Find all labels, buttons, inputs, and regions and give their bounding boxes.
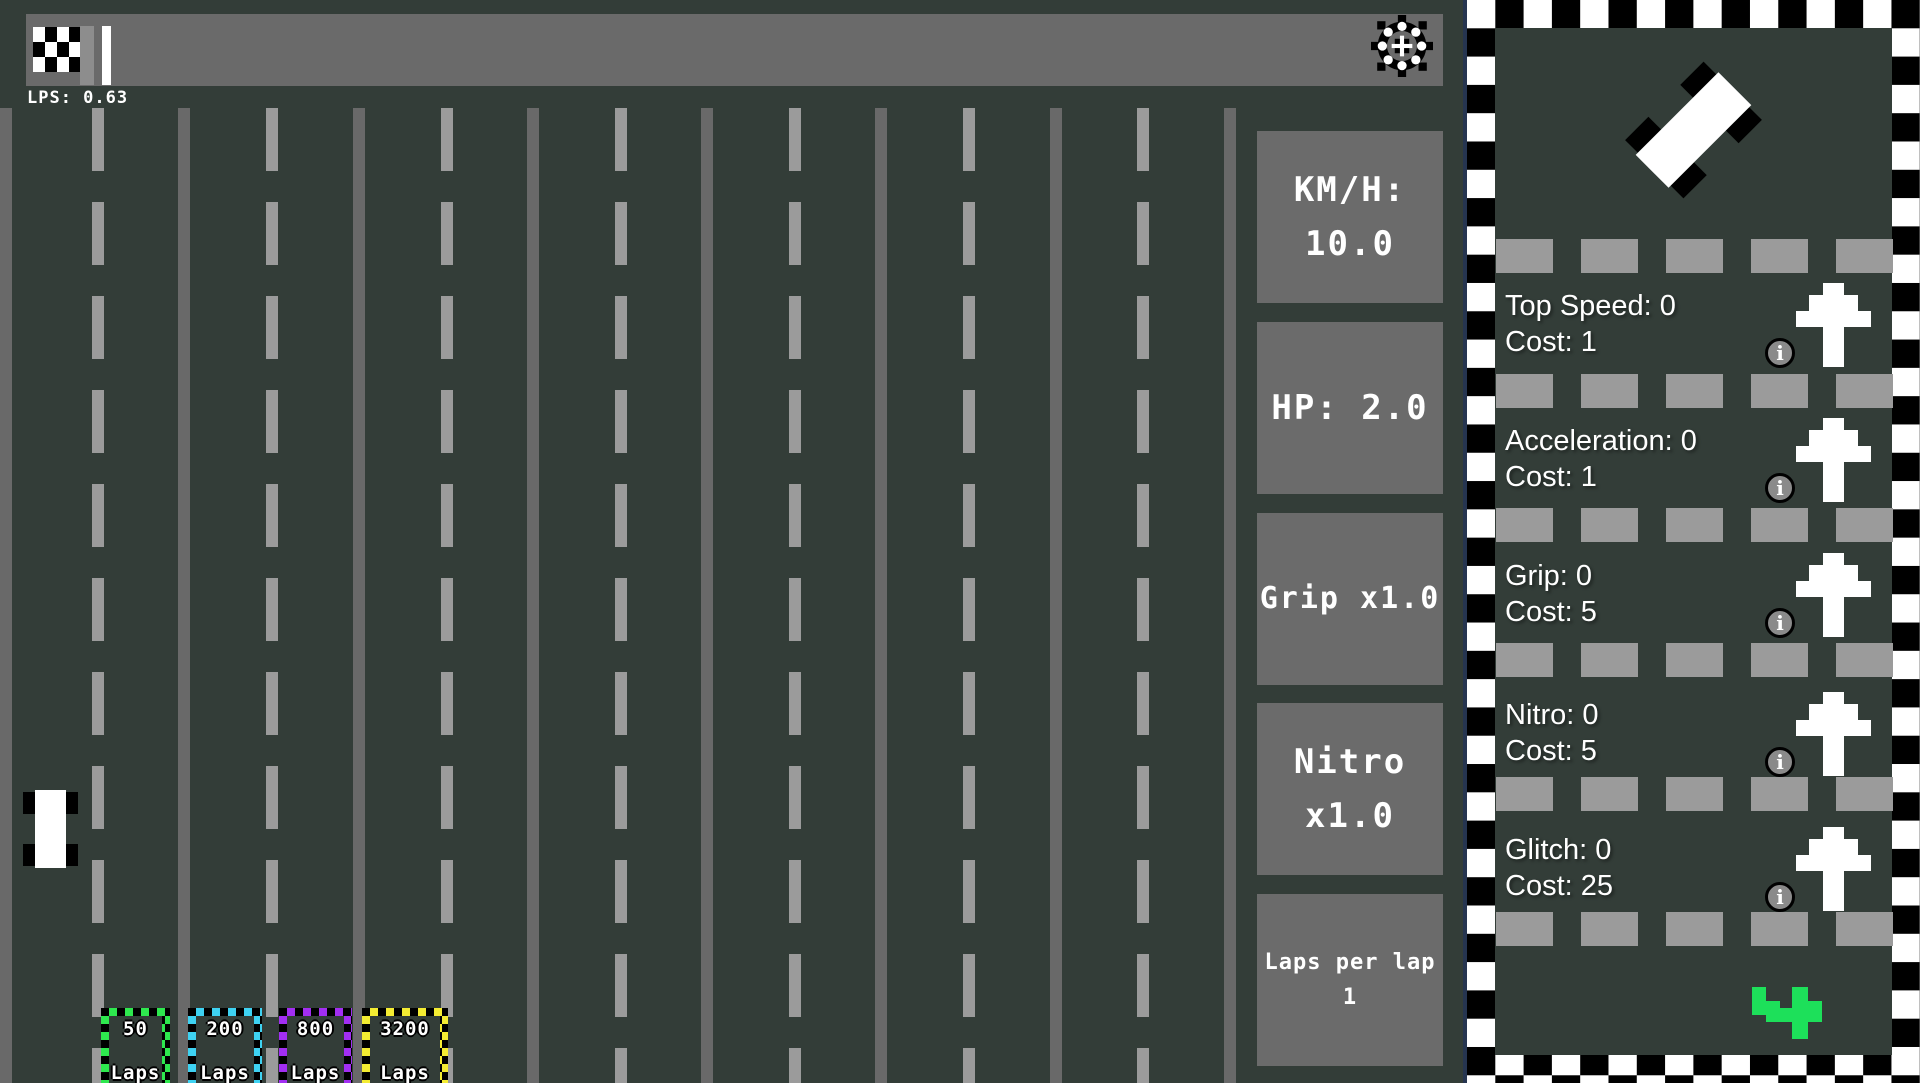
car-wheel <box>66 844 78 866</box>
upgrade-cost-top-speed: Cost: 1 <box>1505 324 1597 360</box>
lane-line-solid <box>875 108 887 1083</box>
upgrade-label-top-speed: Top Speed: 0 <box>1505 288 1676 324</box>
car-wheel <box>66 792 78 814</box>
buy-nitro-button[interactable] <box>1796 692 1871 776</box>
badge-unit: Laps <box>111 1062 161 1083</box>
upgrade-label-nitro: Nitro: 0 <box>1505 697 1598 733</box>
lane-line-dashed <box>266 108 278 1083</box>
lap-progress-bar <box>26 14 1443 86</box>
lap-badge-3200: 3200 Laps <box>362 1008 448 1083</box>
player-car <box>23 790 78 868</box>
pip <box>1836 912 1893 946</box>
info-icon[interactable]: i <box>1765 608 1795 638</box>
stat-label: HP: 2.0 <box>1271 381 1428 435</box>
upgrade-cost-grip: Cost: 5 <box>1505 594 1597 630</box>
buy-top-speed-button[interactable] <box>1796 283 1871 367</box>
pip <box>1496 912 1553 946</box>
pip <box>1751 374 1808 408</box>
stat-box-hp: HP: 2.0 <box>1257 322 1443 494</box>
stat-value: x1.0 <box>1305 789 1395 843</box>
pip <box>1751 239 1808 273</box>
upgrade-label-grip: Grip: 0 <box>1505 558 1592 594</box>
pip <box>1496 374 1553 408</box>
badge-unit: Laps <box>200 1062 250 1083</box>
pip <box>1836 777 1893 811</box>
pip <box>1666 777 1723 811</box>
race-track <box>0 108 1245 1083</box>
checkered-flag-icon <box>33 27 81 72</box>
stat-value: 10.0 <box>1305 217 1395 271</box>
pip <box>1666 508 1723 542</box>
badge-unit: Laps <box>291 1062 341 1083</box>
pip <box>1581 912 1638 946</box>
badge-value: 800 <box>297 1018 334 1040</box>
pip <box>1836 508 1893 542</box>
pip <box>1666 374 1723 408</box>
pip <box>1751 508 1808 542</box>
car-wheel <box>23 792 35 814</box>
car-body <box>35 790 66 868</box>
pip <box>1496 508 1553 542</box>
lane-line-dashed <box>441 108 453 1083</box>
upgrade-level-pips <box>1496 643 1893 677</box>
stat-box-laps-per-lap: Laps per lap 1 <box>1257 894 1443 1066</box>
upgrade-cost-nitro: Cost: 5 <box>1505 733 1597 769</box>
pip <box>1666 239 1723 273</box>
upgrade-level-pips <box>1496 777 1893 811</box>
pip <box>1496 239 1553 273</box>
buy-glitch-button[interactable] <box>1796 827 1871 911</box>
lane-line-solid <box>353 108 365 1083</box>
info-icon[interactable]: i <box>1765 882 1795 912</box>
upgrade-cost-acceleration: Cost: 1 <box>1505 459 1597 495</box>
badge-value: 200 <box>206 1018 243 1040</box>
lane-line-dashed <box>1137 108 1149 1083</box>
pip <box>1836 643 1893 677</box>
info-icon[interactable]: i <box>1765 747 1795 777</box>
pip <box>1581 777 1638 811</box>
progress-fill <box>80 26 94 85</box>
pip <box>1496 777 1553 811</box>
info-glyph: i <box>1776 476 1784 500</box>
pip <box>1581 643 1638 677</box>
stat-label: Nitro <box>1294 735 1406 789</box>
buy-grip-button[interactable] <box>1796 553 1871 637</box>
stat-box-grip: Grip x1.0 <box>1257 513 1443 685</box>
badge-value: 3200 <box>380 1018 430 1040</box>
pip <box>1666 643 1723 677</box>
lane-line-solid <box>1224 108 1236 1083</box>
pip <box>1581 374 1638 408</box>
pip <box>1496 643 1553 677</box>
lane-line-solid <box>178 108 190 1083</box>
upgrade-level-pips <box>1496 239 1893 273</box>
pip <box>1581 508 1638 542</box>
pip <box>1836 374 1893 408</box>
stat-label: KM/H: <box>1294 163 1406 217</box>
info-icon[interactable]: i <box>1765 473 1795 503</box>
upgrade-label-glitch: Glitch: 0 <box>1505 832 1611 868</box>
lane-line-dashed <box>615 108 627 1083</box>
lap-badge-200: 200 Laps <box>188 1008 262 1083</box>
lane-line-solid <box>1050 108 1062 1083</box>
info-glyph: i <box>1776 341 1784 365</box>
lane-line-solid <box>0 108 12 1083</box>
lane-line-dashed <box>789 108 801 1083</box>
stat-box-nitro: Nitro x1.0 <box>1257 703 1443 875</box>
lane-line-dashed <box>92 108 104 1083</box>
upgrade-level-pips <box>1496 912 1893 946</box>
badge-value: 50 <box>123 1018 148 1040</box>
lane-line-solid <box>701 108 713 1083</box>
upgrade-cost-glitch: Cost: 25 <box>1505 868 1613 904</box>
pip <box>1751 912 1808 946</box>
pip <box>1581 239 1638 273</box>
lps-counter: LPS: 0.63 <box>27 88 128 108</box>
badge-unit: Laps <box>380 1062 430 1083</box>
upgrade-panel: Top Speed: 0 Cost: 1 i Acceleration: 0 C… <box>1467 0 1920 1083</box>
upgrade-level-pips <box>1496 508 1893 542</box>
stat-label: Laps per lap <box>1265 945 1436 980</box>
info-glyph: i <box>1776 885 1784 909</box>
progress-marker <box>102 26 111 85</box>
lap-badge-800: 800 Laps <box>279 1008 352 1083</box>
lane-line-dashed <box>963 108 975 1083</box>
stat-value: 1 <box>1343 980 1357 1015</box>
pip <box>1751 643 1808 677</box>
pip <box>1666 912 1723 946</box>
info-icon[interactable]: i <box>1765 338 1795 368</box>
info-glyph: i <box>1776 611 1784 635</box>
green-glitch-arrow-icon[interactable] <box>1752 987 1822 1039</box>
buy-acceleration-button[interactable] <box>1796 418 1871 502</box>
pip <box>1836 239 1893 273</box>
steering-wheel-icon <box>1371 14 1433 78</box>
lap-badge-50: 50 Laps <box>101 1008 170 1083</box>
stat-box-kmh: KM/H: 10.0 <box>1257 131 1443 303</box>
lane-line-solid <box>527 108 539 1083</box>
upgrade-level-pips <box>1496 374 1893 408</box>
stat-label: Grip x1.0 <box>1260 575 1441 623</box>
car-wheel <box>23 844 35 866</box>
game-screen: LPS: 0.63 KM/H: 10.0 HP: 2.0 Grip x1.0 <box>0 0 1920 1083</box>
pip <box>1751 777 1808 811</box>
upgrade-label-acceleration: Acceleration: 0 <box>1505 423 1697 459</box>
info-glyph: i <box>1776 750 1784 774</box>
